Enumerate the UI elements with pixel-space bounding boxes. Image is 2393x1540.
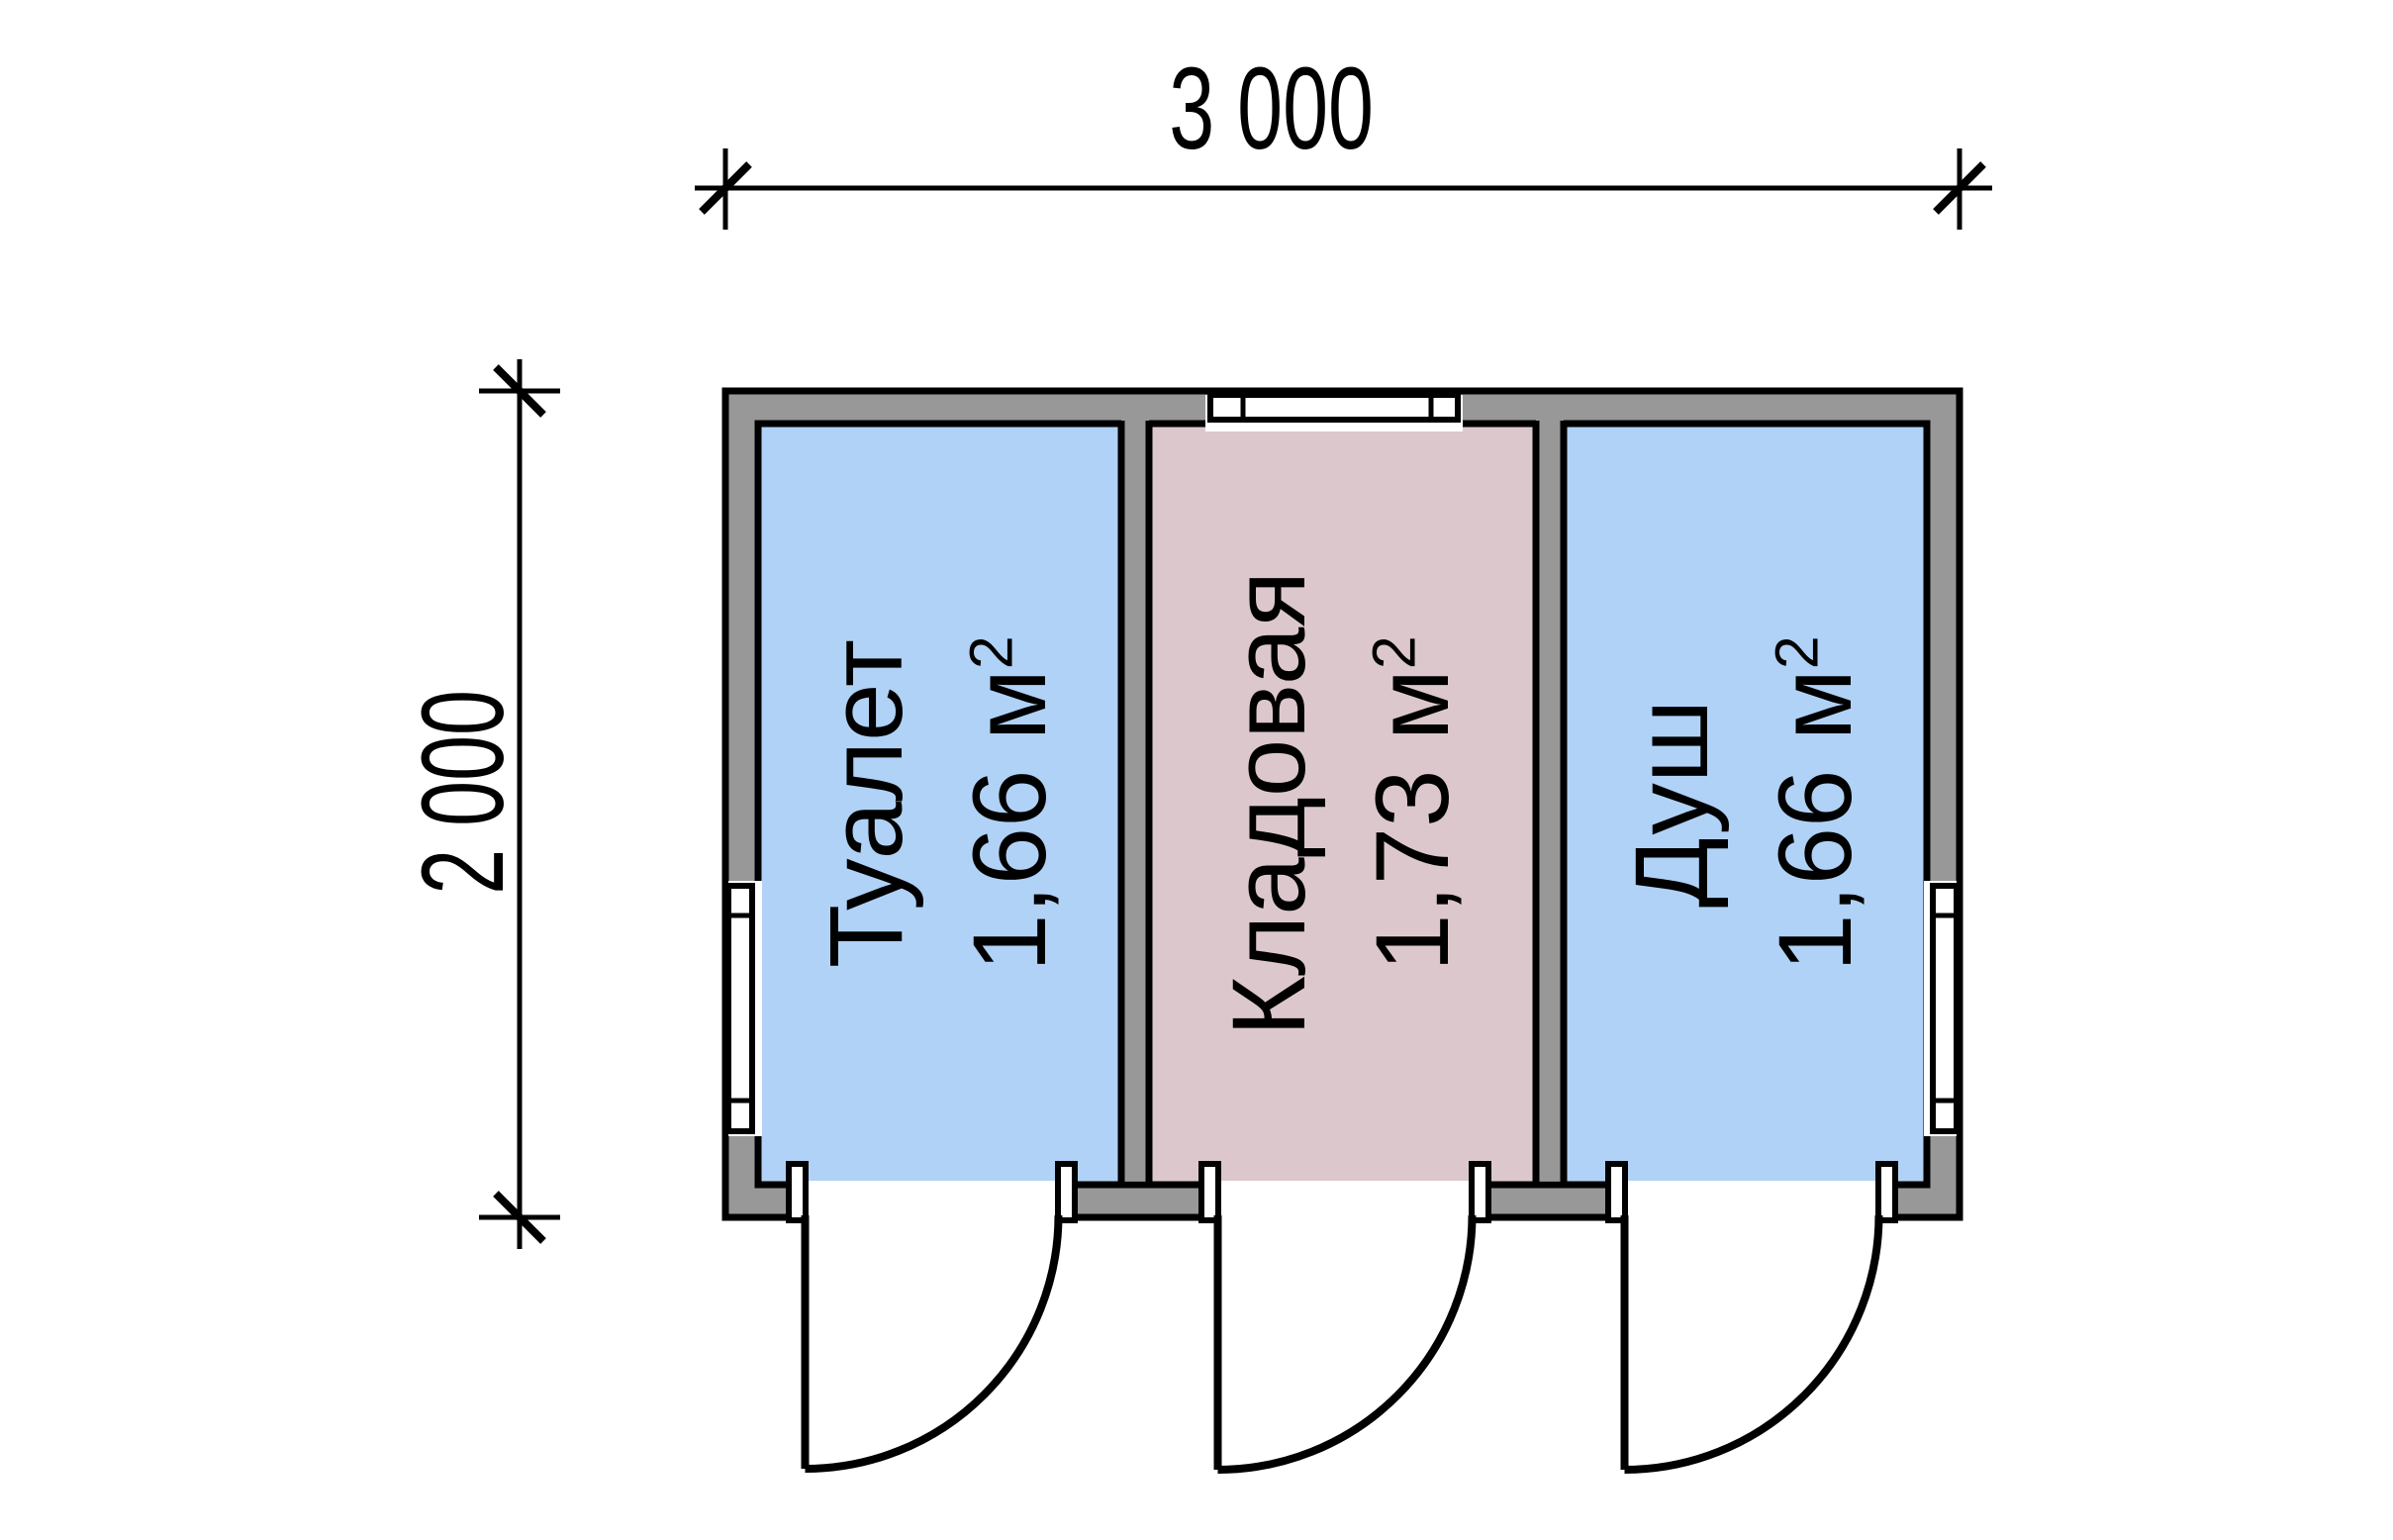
- door-toilet: [789, 1164, 1075, 1469]
- door-jamb: [1201, 1164, 1218, 1220]
- door-jamb: [789, 1164, 806, 1220]
- window-top: [1205, 395, 1463, 432]
- room-name: Туалет: [796, 639, 939, 968]
- door-shower: [1608, 1164, 1895, 1470]
- room-label-shower: Душ 1,66 м2: [1448, 507, 2042, 1101]
- room-area: 1,66 м2: [1745, 635, 1888, 972]
- door-jamb: [1472, 1164, 1488, 1220]
- floor-plan-page: 3 000 2 000 Туалет 1,66 м2 Кладовая 1,73…: [0, 0, 2393, 1540]
- door-jamb: [1878, 1164, 1895, 1220]
- room-name: Кладовая: [1198, 571, 1342, 1036]
- room-name: Душ: [1601, 700, 1745, 908]
- door-swing-arc: [1218, 1215, 1473, 1470]
- door-opening: [1608, 1181, 1895, 1225]
- dimension-width-label: 3 000: [975, 40, 1569, 176]
- door-swing-arc: [806, 1215, 1059, 1469]
- dimension-height-label: 2 000: [394, 495, 530, 1089]
- door-opening: [789, 1181, 1075, 1225]
- door-jamb: [1608, 1164, 1625, 1220]
- door-opening: [1201, 1181, 1488, 1225]
- door-jamb: [1058, 1164, 1075, 1220]
- door-swing-arc: [1625, 1215, 1879, 1470]
- door-storage: [1201, 1164, 1488, 1470]
